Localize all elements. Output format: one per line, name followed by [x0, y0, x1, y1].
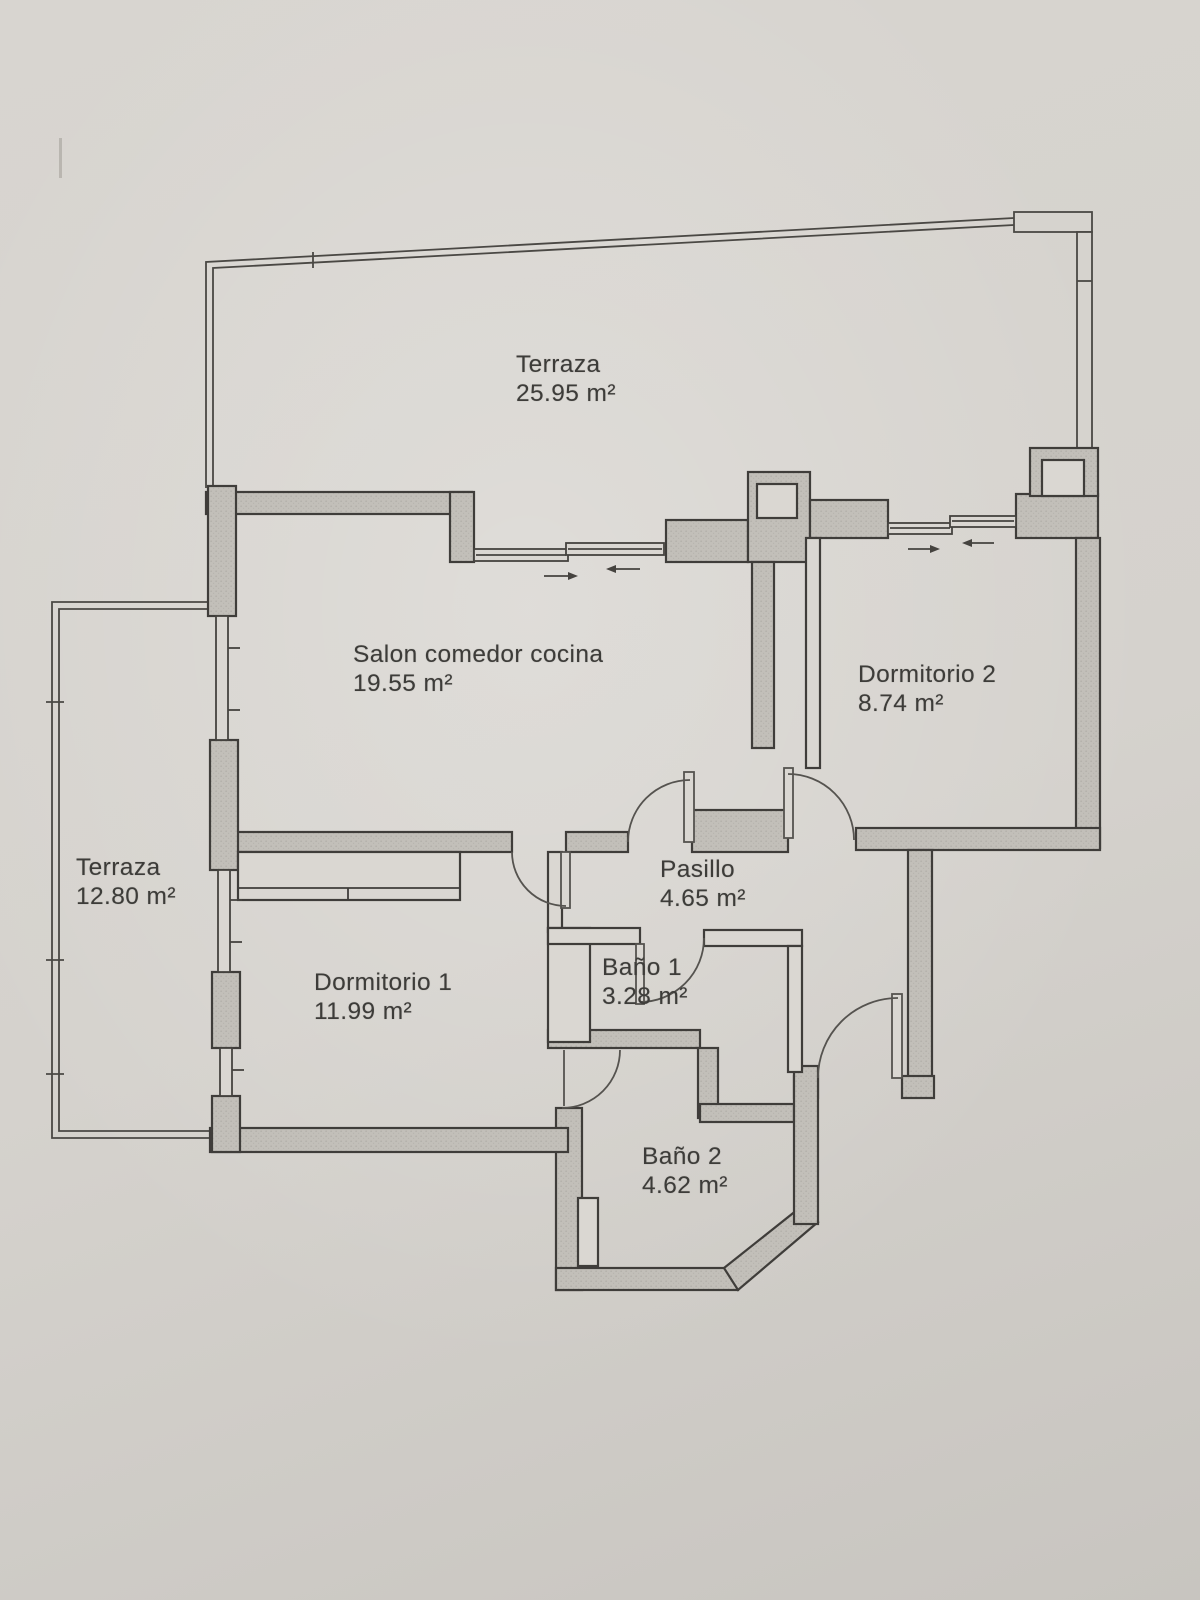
room-area: 4.65 m²	[660, 884, 746, 913]
room-area: 3.28 m²	[602, 982, 688, 1011]
door-entrance	[818, 994, 902, 1078]
door-salon	[628, 772, 694, 842]
column	[757, 484, 797, 518]
arrow-left-icon	[962, 539, 994, 547]
room-area: 11.99 m²	[314, 997, 452, 1026]
room-name: Salon comedor cocina	[353, 640, 603, 669]
floor-plan-page: Terraza 25.95 m² Salon comedor cocina 19…	[0, 0, 1200, 1600]
floor-plan-drawing	[0, 0, 1200, 1600]
room-name: Terraza	[516, 350, 616, 379]
room-label-salon: Salon comedor cocina 19.55 m²	[353, 640, 603, 698]
sliding-window	[888, 516, 1016, 534]
room-name: Dormitorio 2	[858, 660, 996, 689]
room-name: Dormitorio 1	[314, 968, 452, 997]
room-name: Baño 1	[602, 953, 688, 982]
room-area: 4.62 m²	[642, 1171, 728, 1200]
room-name: Terraza	[76, 853, 176, 882]
room-label-terraza-principal: Terraza 25.95 m²	[516, 350, 616, 408]
column	[1042, 460, 1084, 496]
door-dormitorio-1	[512, 852, 570, 908]
arrow-left-icon	[606, 565, 640, 573]
room-area: 25.95 m²	[516, 379, 616, 408]
arrow-right-icon	[544, 572, 578, 580]
sliding-window	[474, 543, 664, 561]
room-area: 8.74 m²	[858, 689, 996, 718]
arrow-right-icon	[908, 545, 940, 553]
room-area: 19.55 m²	[353, 669, 603, 698]
room-name: Baño 2	[642, 1142, 728, 1171]
room-label-dormitorio-2: Dormitorio 2 8.74 m²	[858, 660, 996, 718]
wardrobe	[238, 852, 460, 900]
room-area: 12.80 m²	[76, 882, 176, 911]
room-label-bano-1: Baño 1 3.28 m²	[602, 953, 688, 1011]
door-bano-2	[562, 1050, 620, 1108]
room-label-pasillo: Pasillo 4.65 m²	[660, 855, 746, 913]
room-label-bano-2: Baño 2 4.62 m²	[642, 1142, 728, 1200]
room-label-dormitorio-1: Dormitorio 1 11.99 m²	[314, 968, 452, 1026]
door-dormitorio-2	[784, 768, 854, 840]
room-name: Pasillo	[660, 855, 746, 884]
paper-edge-mark	[59, 138, 62, 178]
room-label-terraza-lateral: Terraza 12.80 m²	[76, 853, 176, 911]
